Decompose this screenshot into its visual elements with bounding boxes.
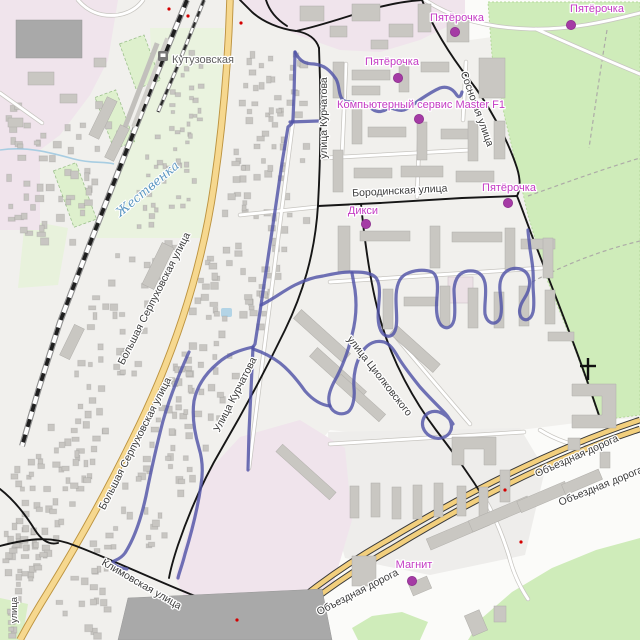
street-label: улица Курчатова	[318, 77, 330, 159]
poi-label: Магнит	[396, 559, 433, 571]
map-svg[interactable]: Кутузовская Жественка Большая Серпуховск…	[0, 0, 640, 640]
shop-dot-icon[interactable]	[361, 219, 370, 228]
shop-dot-icon[interactable]	[414, 114, 423, 123]
shop-dot-icon[interactable]	[566, 20, 575, 29]
shop-dot-icon[interactable]	[407, 576, 416, 585]
poi-label: Дикси	[348, 205, 378, 217]
shop-dot-icon[interactable]	[393, 73, 402, 82]
poi-label: Пятёрочка	[482, 182, 537, 194]
station-label: Кутузовская	[172, 54, 234, 66]
poi-label: Пятёрочка	[570, 3, 625, 15]
shop-dot-icon[interactable]	[450, 27, 459, 36]
poi-label: Пятёрочка	[430, 12, 485, 24]
street-label: улица	[9, 596, 20, 623]
train-station-icon-window	[161, 54, 166, 58]
poi-label: Компьютерный сервис Master F1	[337, 99, 505, 111]
map-canvas[interactable]: Кутузовская Жественка Большая Серпуховск…	[0, 0, 640, 640]
poi-label: Пятёрочка	[365, 56, 420, 68]
shop-dot-icon[interactable]	[503, 198, 512, 207]
